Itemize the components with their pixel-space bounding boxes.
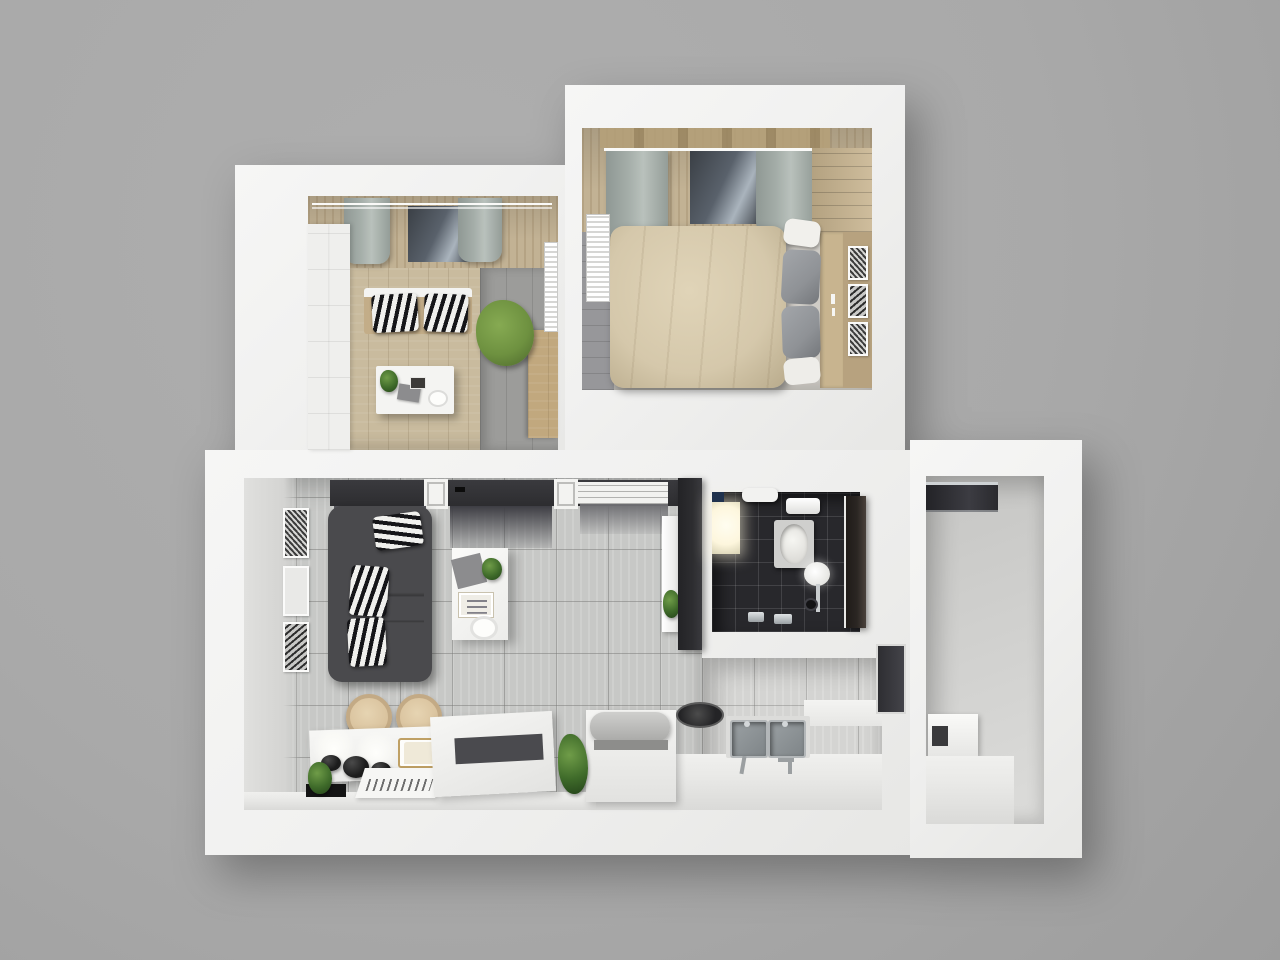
bedroom-curtain-rod (604, 148, 844, 151)
office-zebra-pillow-1 (371, 293, 419, 333)
office-side-cabinet (528, 330, 558, 438)
bedroom-step-wardrobe (812, 148, 872, 232)
green-chair (476, 300, 534, 366)
bed-white-sheet (783, 356, 822, 386)
bathtub-basin (780, 524, 808, 564)
office-curtain-left (344, 198, 390, 264)
bedside-candle-1 (831, 294, 835, 304)
charcoal-partition (678, 478, 702, 650)
bedroom-frame-1 (848, 246, 868, 280)
closet-door-frame-2 (554, 479, 578, 509)
desk-plate (428, 390, 448, 407)
wall-art-1 (283, 508, 309, 558)
bathroom-sink (804, 562, 830, 586)
sofa-zebra-pillow-3 (347, 617, 387, 667)
office-zebra-pillow-2 (423, 293, 468, 333)
wall-art-2 (283, 566, 309, 616)
bedroom-frame-3 (848, 322, 868, 356)
table-plant (482, 558, 502, 580)
door-mat-2 (450, 506, 552, 548)
balcony-appliance-door (932, 726, 948, 746)
lit-shower-tray (712, 502, 740, 554)
chrome-tap-2 (774, 614, 792, 624)
bathroom-shelf (742, 488, 778, 502)
bar-plant (308, 762, 332, 794)
closet-handle (455, 487, 465, 492)
office-radiator (544, 242, 558, 332)
cooktop (676, 702, 724, 728)
round-plate (470, 616, 498, 640)
floor-drain (804, 598, 818, 611)
magazine-tray (458, 592, 494, 618)
bedroom-frame-2 (848, 284, 868, 318)
sink-faucet-1 (744, 721, 750, 727)
balcony-door (876, 644, 906, 714)
kitchen-counter-right (804, 700, 882, 726)
floor-plan-scene (0, 0, 1280, 960)
bed-white-pillow (782, 218, 821, 249)
sofa-zebra-pillow-2 (348, 565, 389, 618)
bedroom-curtain-left (606, 150, 668, 238)
entry-ceiling-light (578, 482, 668, 504)
chrome-tap-1 (748, 612, 764, 622)
bedroom-radiator (586, 214, 610, 302)
office-wardrobe (308, 224, 350, 450)
office-curtain-right (458, 198, 502, 262)
bathroom-wall-device (712, 492, 724, 502)
covered-appliance (590, 712, 670, 742)
faucet-handle-3 (788, 758, 792, 774)
balcony-ledge (926, 756, 1014, 824)
bed-gray-pillow-1 (781, 249, 822, 305)
wall-art-3 (283, 622, 309, 672)
water-heater (786, 498, 820, 514)
menu-cards (355, 768, 445, 798)
appliance-front (594, 740, 668, 750)
sofa-zebra-pillow-1 (372, 511, 424, 551)
dark-table-mat (454, 734, 543, 765)
desk-plant (380, 370, 398, 392)
bedroom-window-glass (690, 150, 762, 224)
bed-gray-pillow-2 (781, 305, 821, 358)
double-bed (610, 226, 786, 388)
door-mat-3 (580, 504, 668, 534)
bathroom-open-door (846, 496, 866, 628)
bedroom-valance (600, 128, 830, 148)
closet-door-frame-1 (424, 479, 448, 509)
sink-faucet-2 (782, 721, 788, 727)
desk-photo-frame (410, 377, 426, 389)
office-curtain-rod (312, 203, 552, 205)
bedside-candle-2 (832, 308, 835, 316)
balcony-window-band (926, 482, 998, 512)
